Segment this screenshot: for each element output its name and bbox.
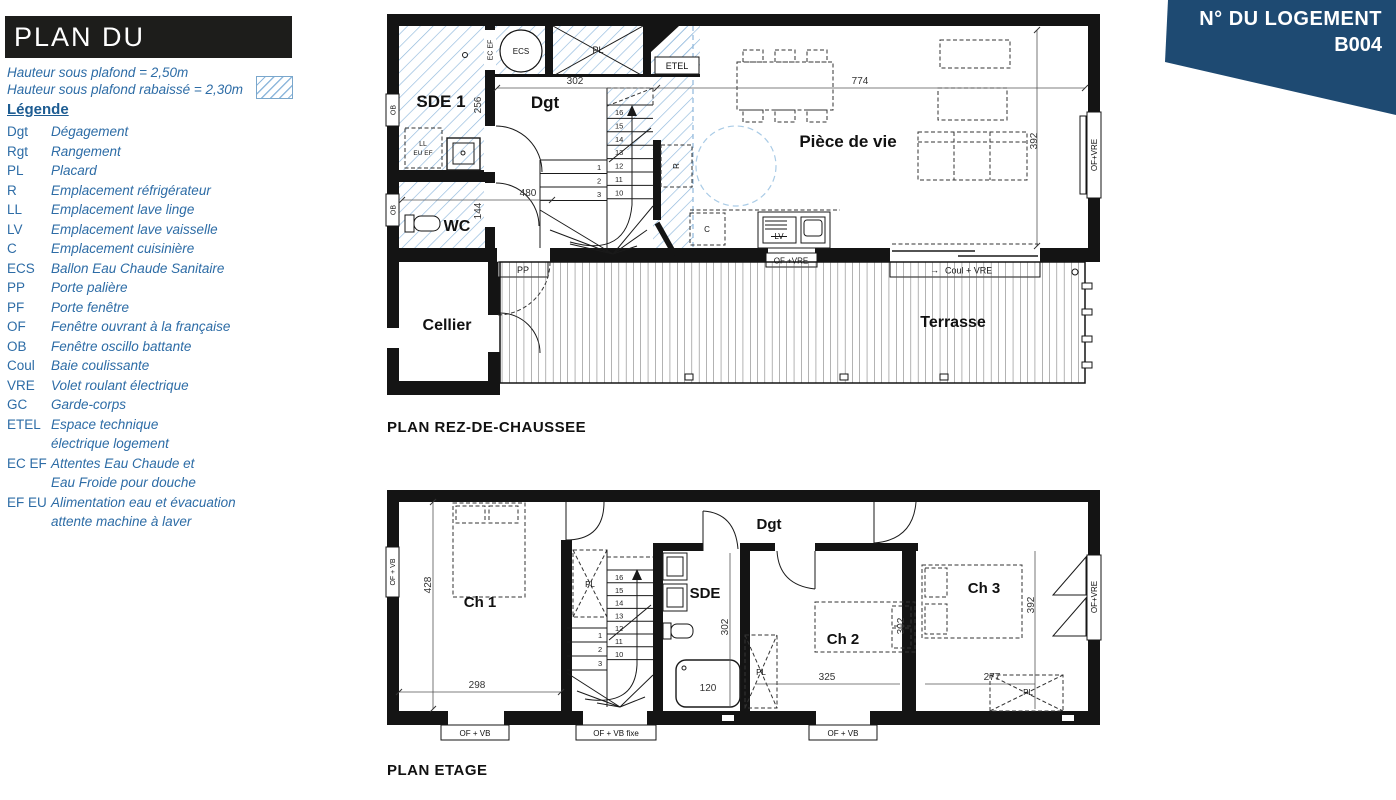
stair-step-number: 3 [598,659,602,668]
stair-step-number: 11 [615,175,623,184]
upper-floor-plan: OF + VB OF + VB OF + VB fixe OF + VB OF+… [385,485,1105,785]
legend-label: Porte fenêtre [51,298,129,318]
window-of-vb-left-label: OF + VB [390,558,397,585]
stair-step-number: 12 [615,624,623,633]
washing-machine-label: LL [419,141,427,148]
staircase: PL 16 15 14 13 12 11 10 1 2 3 [567,550,653,707]
legend-label: Baie coulissante [51,356,149,376]
dim-wc-height: 144 [473,202,484,219]
closet-pl-label: PL [585,580,595,589]
etel-label: ETEL [666,61,689,71]
legend-abbr: Dgt [7,122,51,142]
legend-abbr: Rgt [7,142,51,162]
legend-item: OFFenêtre ouvrant à la française [7,317,337,337]
stair-step-number: 16 [615,573,623,582]
legend-abbr: PL [7,161,51,181]
stair-step-number: 1 [598,631,602,640]
legend-label: Porte palière [51,278,128,298]
badge-unit-number: B004 [1150,34,1382,57]
stair-step-number: 1 [597,163,601,172]
french-door-leaf-2 [1053,598,1086,636]
legend-item: EF EUAlimentation eau et évacuationatten… [7,493,337,532]
room-label-ch2: Ch 2 [827,631,860,648]
legend-label: Espace techniqueélectrique logement [51,415,169,454]
stair-step-number: 11 [615,637,623,646]
sideboard [940,40,1010,68]
dim-ch3-height: 392 [1026,596,1037,613]
legend-label: Fenêtre oscillo battante [51,337,191,357]
legend-label: Emplacement réfrigérateur [51,181,211,201]
room-label-cellier: Cellier [423,317,472,334]
legend-abbr: VRE [7,376,51,396]
stair-step-number: 10 [615,188,623,197]
legend-item: PPPorte palière [7,278,337,298]
lowered-ceiling-hatch-swatch [256,76,293,99]
legend-label: Ballon Eau Chaude Sanitaire [51,259,224,279]
stair-step-number: 3 [597,190,601,199]
window-ob-2-label: OB [391,205,398,215]
wc-toilet-bowl [414,216,440,231]
legend-item: PLPlacard [7,161,337,181]
dim-sde1-height: 256 [473,96,484,113]
room-label-piece-de-vie: Pièce de vie [799,132,896,151]
legend-item: LLEmplacement lave linge [7,200,337,220]
room-label-sde: SDE [690,585,721,602]
legend-abbr: PF [7,298,51,318]
closet-pl-ch3-label: PL [1023,688,1033,697]
stair-step-number: 2 [598,645,602,654]
legend-label: Alimentation eau et évacuationattente ma… [51,493,236,532]
stair-step-number: 13 [615,148,623,157]
legend-abbr: EF EU [7,493,51,532]
legend-item: EC EFAttentes Eau Chaude etEau Froide po… [7,454,337,493]
fridge-label: R [672,163,681,169]
window-of-vre-right-label: OF+VRE [1090,139,1099,171]
stair-step-number: 16 [615,108,623,117]
stair-step-number: 10 [615,650,623,659]
ground-floor-plan: OB OB OF+VRE OF +VRE → Coul + VRE PP ECS… [385,10,1105,445]
stair-step-number: 15 [615,586,623,595]
sde1-door-arc [496,126,542,172]
legend-item: PFPorte fenêtre [7,298,337,318]
legend-label: Emplacement lave linge [51,200,194,220]
room-label-ch1: Ch 1 [464,594,497,611]
dim-ch2-width: 325 [819,672,836,683]
window-of-vre-right-label: OF+VRE [1090,581,1099,613]
stair-step-number: 14 [615,599,623,608]
ch2-door-arc [777,551,815,589]
legend-item: LVEmplacement lave vaisselle [7,220,337,240]
dim-bathtub: 120 [700,683,717,694]
room-label-sde1: SDE 1 [416,92,465,111]
legend-item: VREVolet roulant électrique [7,376,337,396]
legend-abbr: R [7,181,51,201]
room-label-ch3: Ch 3 [968,580,1001,597]
stair-step-number: 13 [615,611,623,620]
bed-ch3 [922,565,1022,638]
closet-pl-label: PL [592,45,603,55]
room-label-dgt: Dgt [531,93,560,112]
water-supply-label: EU EF [413,150,432,157]
room-label-wc: WC [444,218,471,235]
legend-item: ECSBallon Eau Chaude Sanitaire [7,259,337,279]
ch3-door-arc [874,502,916,543]
legend-label: Emplacement lave vaisselle [51,220,218,240]
window-of-vb-2-label: OF + VB [828,729,859,738]
badge-title: N° DU LOGEMENT [1150,8,1382,31]
legend-item: DgtDégagement [7,122,337,142]
dim-living-height: 392 [1029,132,1040,149]
legend-item: REmplacement réfrigérateur [7,181,337,201]
legend: Légende DgtDégagement RgtRangement PLPla… [7,101,337,532]
legend-label: Placard [51,161,97,181]
sofa [918,132,1027,180]
legend-abbr: OF [7,317,51,337]
legend-abbr: GC [7,395,51,415]
room-label-terrasse: Terrasse [920,314,986,331]
unit-number-badge: N° DU LOGEMENT B004 [1150,0,1396,118]
legend-item: ETELEspace techniqueélectrique logement [7,415,337,454]
legend-label: Dégagement [51,122,128,142]
legend-label: Emplacement cuisinière [51,239,194,259]
toilet-tank [663,623,671,639]
stair-step-number: 15 [615,121,623,130]
legend-item: CEmplacement cuisinière [7,239,337,259]
coffee-table [938,88,1007,120]
legend-abbr: ETEL [7,415,51,454]
stair-step-number: 14 [615,135,623,144]
bedroom-furniture: PL PL [453,503,1063,711]
water-heater-label: ECS [513,47,529,56]
ch1-door-arc [566,502,604,540]
dim-sde-height: 302 [720,618,731,635]
legend-label: Garde-corps [51,395,126,415]
page-title: PLAN DU LOGEMENT [5,16,292,58]
closet-pl-ch2-label: PL [756,668,766,677]
dim-living-width: 774 [852,76,869,87]
legend-title: Légende [7,101,337,118]
window-of-vb-fixe-label: OF + VB fixe [593,729,639,738]
legend-abbr: ECS [7,259,51,279]
window-ob-1-label: OB [391,105,398,115]
room-label-dgt: Dgt [757,516,782,533]
stair-step-number: 12 [615,162,623,171]
ecef-label: EC EF [488,40,495,61]
dim-wc-width: 480 [520,188,537,199]
legend-abbr: LV [7,220,51,240]
round-rug [696,126,776,206]
toilet-bowl [671,624,693,638]
dim-ch1-width: 298 [469,680,486,691]
window-of-vb-1-label: OF + VB [460,729,491,738]
legend-abbr: LL [7,200,51,220]
dim-dgt-width: 302 [567,76,584,87]
legend-abbr: Coul [7,356,51,376]
dining-table [737,62,833,110]
legend-abbr: EC EF [7,454,51,493]
legend-item: OBFenêtre oscillo battante [7,337,337,357]
terrace [500,262,1092,383]
legend-abbr: OB [7,337,51,357]
legend-item: RgtRangement [7,142,337,162]
legend-abbr: C [7,239,51,259]
legend-label: Rangement [51,142,121,162]
stair-step-number: 2 [597,177,601,186]
legend-label: Fenêtre ouvrant à la française [51,317,230,337]
legend-label: Attentes Eau Chaude etEau Froide pour do… [51,454,196,493]
legend-abbr: PP [7,278,51,298]
upper-floor-caption: PLAN ETAGE [387,762,488,779]
dim-ch1-height: 428 [423,576,434,593]
french-door-leaf-1 [1053,557,1086,595]
dim-bed-ch2: 302 [896,617,907,634]
legend-label: Volet roulant électrique [51,376,189,396]
wc-toilet-tank [405,215,414,232]
legend-item: CoulBaie coulissante [7,356,337,376]
living-furniture [696,40,1027,206]
ground-floor-caption: PLAN REZ-DE-CHAUSSEE [387,419,586,436]
dim-ch3-width: 277 [984,672,1001,683]
sde-door-arc [703,511,738,549]
legend-item: GCGarde-corps [7,395,337,415]
cooker-label: C [704,225,710,234]
